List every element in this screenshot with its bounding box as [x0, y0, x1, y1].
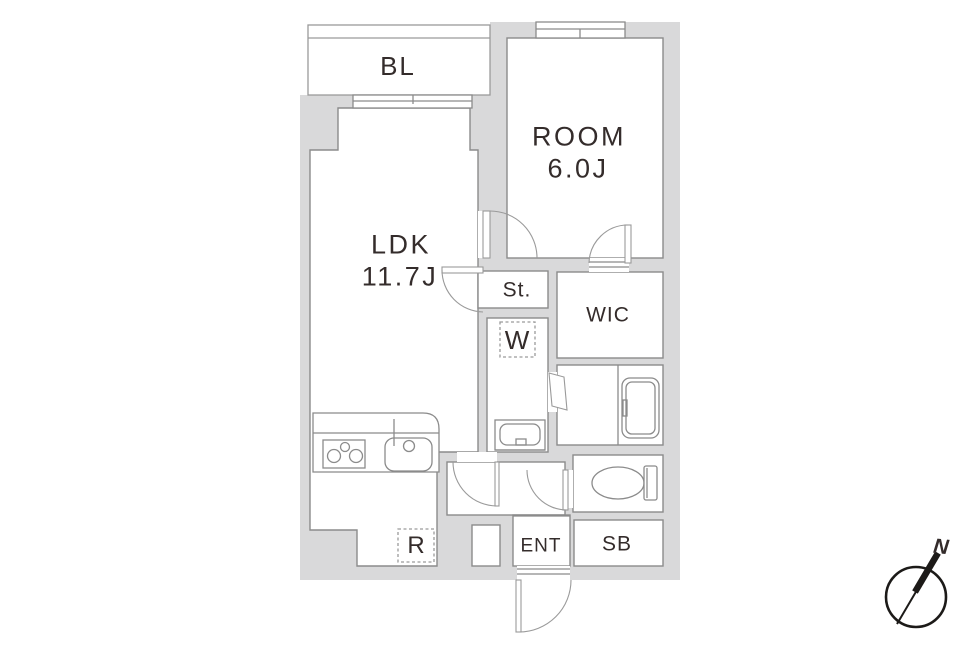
washbasin-icon [495, 420, 545, 450]
wic-threshold [589, 258, 629, 272]
hallway-floor [447, 462, 565, 515]
stove-icon [323, 440, 365, 468]
bedroom-label: ROOM [532, 124, 626, 151]
washer-label: W [505, 327, 530, 353]
wic-label: WIC [586, 305, 630, 326]
compass-north-label: N [932, 536, 949, 558]
entrance-door [516, 580, 571, 632]
toilet-icon [592, 466, 657, 500]
refrigerator-label: R [407, 534, 424, 558]
bathroom-folding-door [549, 373, 567, 410]
ldk-window [353, 95, 472, 108]
entrance-label: ENT [521, 537, 562, 556]
ldk-label: LDK [371, 232, 431, 259]
bedroom-window [536, 22, 625, 38]
alcove-floor [472, 525, 500, 566]
bedroom-size: 6.0J [547, 156, 608, 183]
floorplan-drawing [0, 0, 980, 655]
ldk-size: 11.7J [362, 264, 439, 291]
storage-label: St. [503, 280, 532, 301]
balcony-label: BL [380, 53, 416, 79]
entrance-threshold [517, 566, 570, 580]
compass-icon [886, 553, 946, 627]
shoebox-label: SB [602, 534, 632, 555]
floorplan-page: BL ROOM 6.0J LDK 11.7J St. W WIC R ENT S… [0, 0, 980, 655]
washroom-doorway-gap [457, 452, 497, 462]
